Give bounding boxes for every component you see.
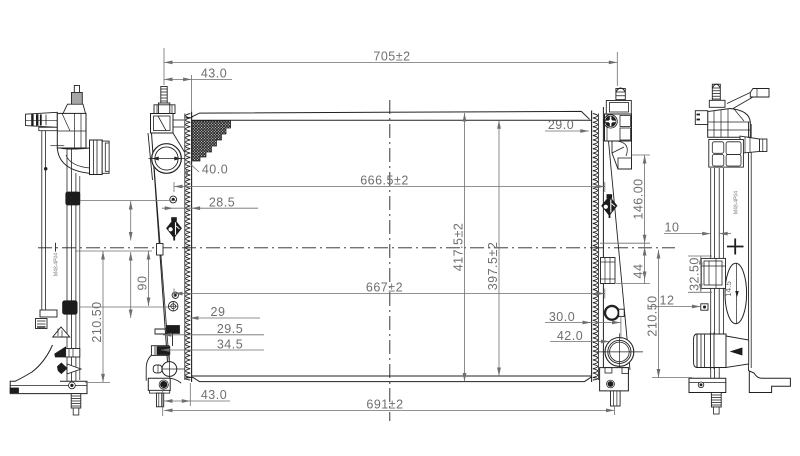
svg-text:667±2: 667±2 xyxy=(366,281,403,295)
svg-text:29: 29 xyxy=(211,305,226,319)
svg-text:M48-4P04: M48-4P04 xyxy=(54,253,60,276)
svg-text:146.00: 146.00 xyxy=(632,178,646,219)
svg-text:210.50: 210.50 xyxy=(90,301,104,342)
svg-text:M48-4P04: M48-4P04 xyxy=(734,191,740,214)
svg-text:210.50: 210.50 xyxy=(645,295,659,336)
svg-text:666.5±2: 666.5±2 xyxy=(360,174,409,188)
svg-text:43.0: 43.0 xyxy=(201,388,227,402)
svg-text:43.0: 43.0 xyxy=(201,67,227,81)
svg-text:29.0: 29.0 xyxy=(548,118,574,132)
svg-text:705±2: 705±2 xyxy=(373,50,410,64)
svg-text:34.5: 34.5 xyxy=(217,337,243,351)
svg-text:12: 12 xyxy=(660,294,675,308)
svg-text:10: 10 xyxy=(665,221,680,235)
svg-text:691±2: 691±2 xyxy=(366,398,403,412)
svg-text:44: 44 xyxy=(632,264,646,279)
svg-text:32.50: 32.50 xyxy=(688,257,702,291)
svg-text:30.0: 30.0 xyxy=(549,310,575,324)
svg-text:40.0: 40.0 xyxy=(202,163,228,177)
svg-text:28.5: 28.5 xyxy=(209,195,235,209)
svg-text:29.5: 29.5 xyxy=(217,322,243,336)
svg-text:42.0: 42.0 xyxy=(557,329,583,343)
svg-text:397.5±2: 397.5±2 xyxy=(486,242,500,291)
svg-text:90: 90 xyxy=(135,276,149,291)
svg-text:417.5±2: 417.5±2 xyxy=(452,223,466,272)
